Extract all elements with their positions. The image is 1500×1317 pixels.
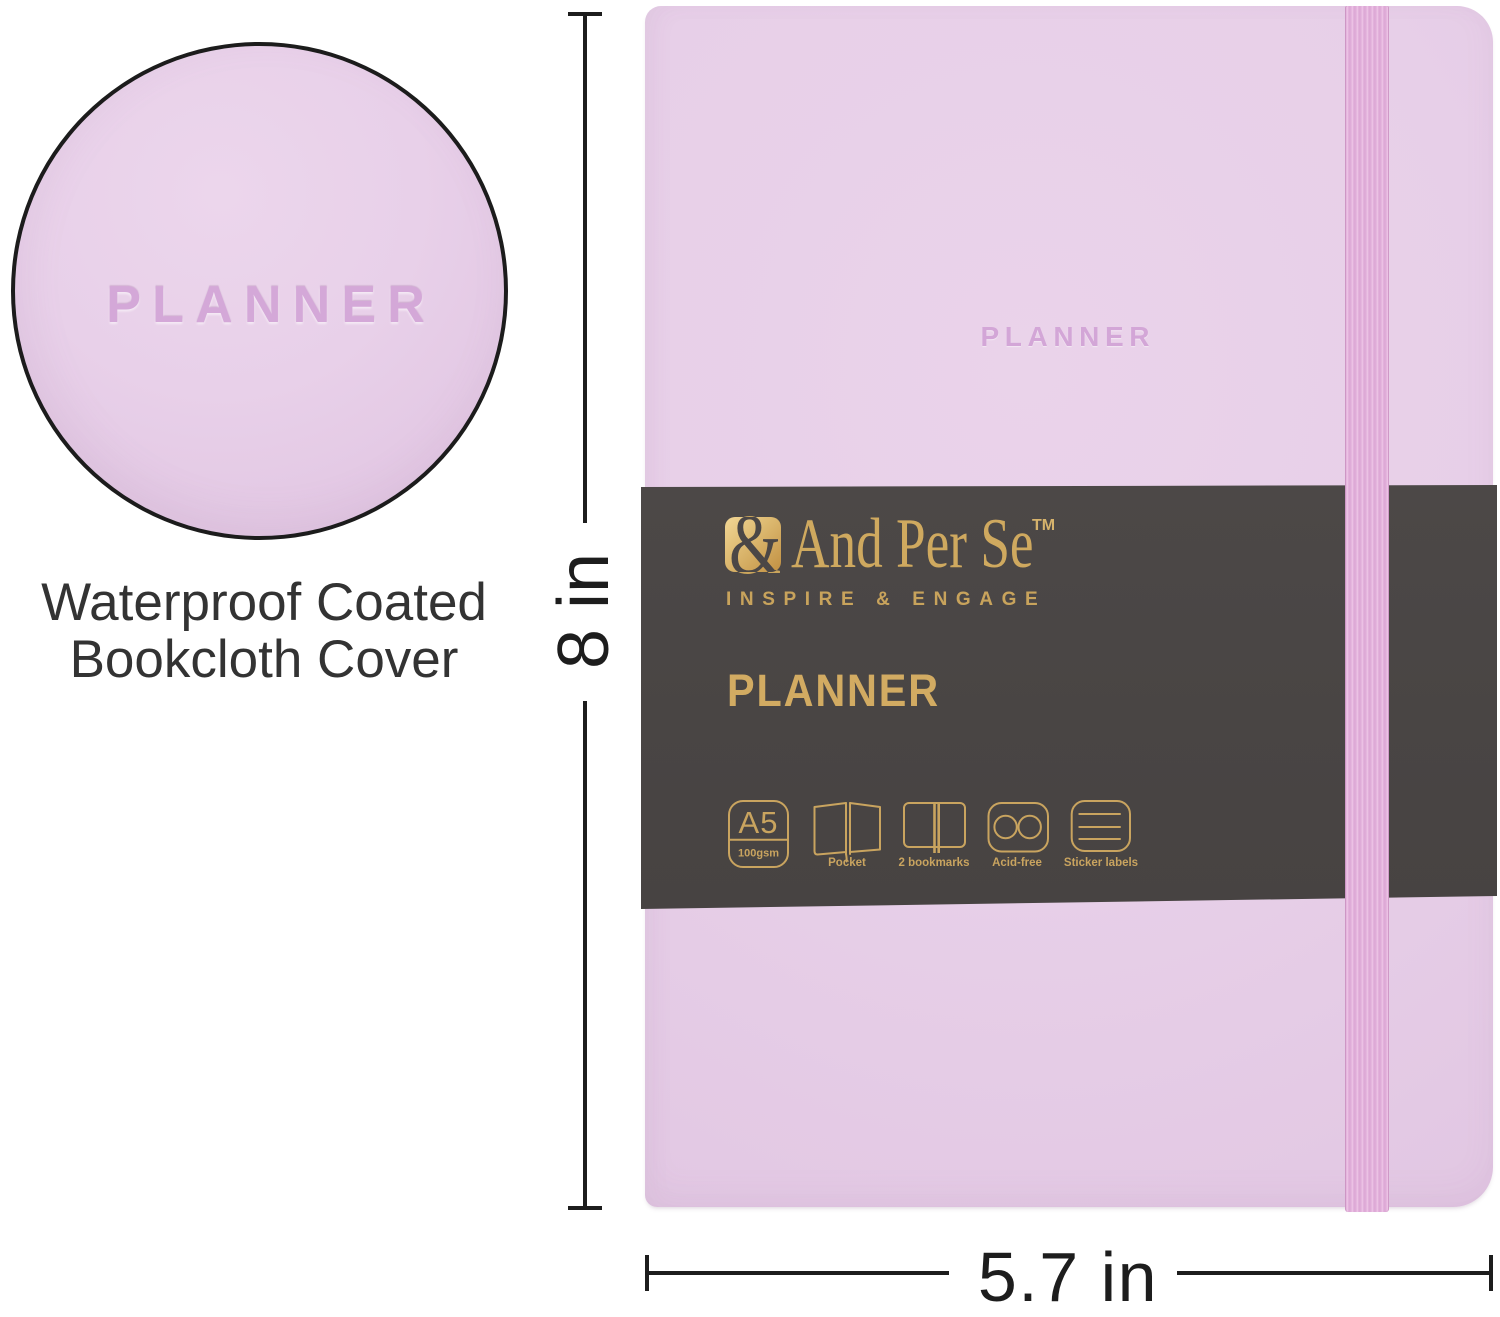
svg-text:&: & [729,508,781,578]
svg-text:A5: A5 [739,805,779,840]
svg-text:100gsm: 100gsm [738,848,779,860]
